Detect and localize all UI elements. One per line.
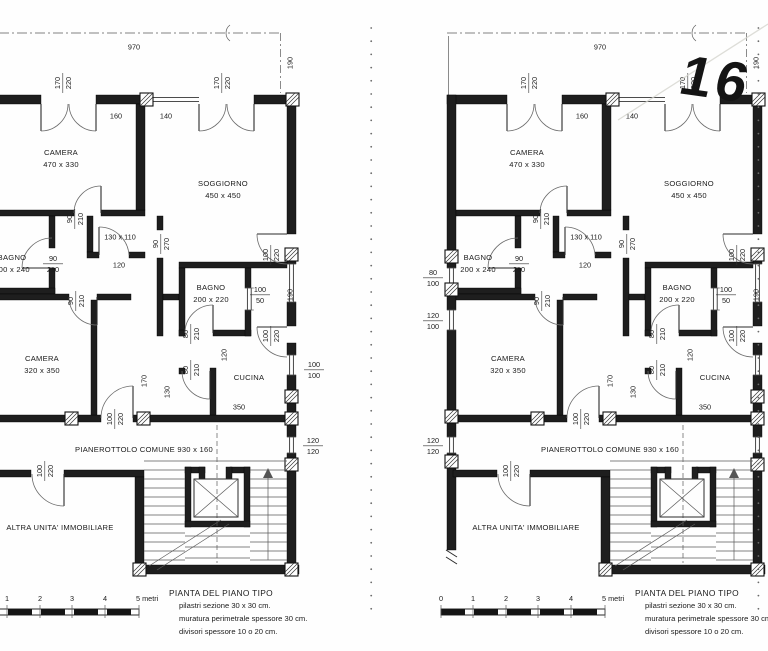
room-label: BAGNO200 x 240 <box>460 253 496 274</box>
svg-text:210: 210 <box>77 295 86 307</box>
svg-text:120: 120 <box>427 311 439 320</box>
svg-text:210: 210 <box>513 265 525 274</box>
door-swing-arc <box>69 104 96 131</box>
svg-text:80: 80 <box>181 330 190 338</box>
dimension-label: 140 <box>160 112 172 121</box>
svg-text:210: 210 <box>76 213 85 225</box>
svg-text:160: 160 <box>576 112 588 121</box>
drawing-note: divisori spessore 10 o 20 cm. <box>179 627 277 636</box>
svg-text:200 x 220: 200 x 220 <box>659 295 695 304</box>
svg-text:470 x 330: 470 x 330 <box>43 160 79 169</box>
svg-text:220: 220 <box>46 465 55 477</box>
dimension-label: 100220 <box>727 326 747 346</box>
door-swing-arc <box>227 104 254 131</box>
scale-bar: 012345 metri <box>0 594 159 618</box>
elevator-shaft <box>194 479 238 517</box>
svg-text:220: 220 <box>530 77 539 89</box>
drawing-title: PIANTA DEL PIANO TIPO <box>635 588 739 598</box>
room-label: CUCINA <box>234 373 265 382</box>
dimension-label: 350 <box>699 403 711 412</box>
svg-text:100: 100 <box>261 330 270 342</box>
svg-text:100: 100 <box>308 371 320 380</box>
dimension-label: 170 <box>140 375 149 387</box>
svg-text:BAGNO: BAGNO <box>197 283 226 292</box>
dimension-label: 170220 <box>53 73 73 93</box>
room-label: SOGGIORNO450 x 450 <box>664 179 714 200</box>
svg-text:120: 120 <box>427 436 439 445</box>
door-swing-arc <box>507 104 534 131</box>
dimension-label: 170220 <box>212 73 232 93</box>
dimension-label: 100220 <box>727 245 747 265</box>
room-label: ALTRA UNITA' IMMOBILIARE <box>472 523 579 532</box>
svg-text:220: 220 <box>738 249 747 261</box>
svg-text:970: 970 <box>128 43 140 52</box>
svg-text:200 x 240: 200 x 240 <box>0 265 30 274</box>
svg-text:90: 90 <box>151 240 160 248</box>
dimension-label: 100220 <box>571 409 591 429</box>
svg-text:450 x 450: 450 x 450 <box>671 191 707 200</box>
svg-text:220: 220 <box>223 77 232 89</box>
svg-text:130 x 110: 130 x 110 <box>570 233 602 242</box>
scale-tick-label: 5 metri <box>602 594 625 603</box>
dimension-label: 170 <box>606 375 615 387</box>
room-label: BAGNO200 x 220 <box>659 283 695 304</box>
svg-text:100: 100 <box>35 465 44 477</box>
svg-text:170: 170 <box>140 375 149 387</box>
dimension-label: 190 <box>286 289 295 301</box>
svg-text:BAGNO: BAGNO <box>663 283 692 292</box>
scale-tick-label: 1 <box>471 594 475 603</box>
dimension-label: 80210 <box>647 360 667 380</box>
dimension-label: 100220 <box>261 245 281 265</box>
svg-text:170: 170 <box>519 77 528 89</box>
svg-text:100: 100 <box>254 285 266 294</box>
dimension-label: 120 <box>113 261 125 270</box>
svg-text:130 x 110: 130 x 110 <box>104 233 136 242</box>
door-swing-arc <box>498 474 530 506</box>
drawing-note: divisori spessore 10 o 20 cm. <box>645 627 743 636</box>
svg-text:140: 140 <box>626 112 638 121</box>
svg-text:160: 160 <box>110 112 122 121</box>
svg-text:170: 170 <box>53 77 62 89</box>
svg-text:320 x 350: 320 x 350 <box>490 366 526 375</box>
dimension-label: 130 x 110 <box>104 233 136 242</box>
svg-text:CAMERA: CAMERA <box>510 148 545 157</box>
svg-text:190: 190 <box>286 57 295 69</box>
room-label: CUCINA <box>700 373 731 382</box>
svg-text:BAGNO: BAGNO <box>0 253 26 262</box>
room-label: SOGGIORNO450 x 450 <box>198 179 248 200</box>
svg-text:470 x 330: 470 x 330 <box>509 160 545 169</box>
svg-text:CUCINA: CUCINA <box>700 373 731 382</box>
svg-text:170: 170 <box>606 375 615 387</box>
dimension-label: 90210 <box>43 254 63 274</box>
dimension-label: 120120 <box>423 436 443 456</box>
dimension-label: 100220 <box>261 326 281 346</box>
svg-text:100: 100 <box>308 360 320 369</box>
stair-direction-arrow <box>729 468 739 478</box>
svg-text:220: 220 <box>512 465 521 477</box>
dimension-label: 130 <box>629 386 638 398</box>
dimension-label: 120 <box>579 261 591 270</box>
svg-text:210: 210 <box>658 364 667 376</box>
svg-text:120: 120 <box>579 261 591 270</box>
scale-tick-label: 2 <box>504 594 508 603</box>
drawing-note: muratura perimetrale spessore 30 cm. <box>645 614 768 623</box>
scale-tick-label: 3 <box>70 594 74 603</box>
drawing-note: muratura perimetrale spessore 30 cm. <box>179 614 307 623</box>
floorplan-right-unit: 97017022017022016014019090210130 x 11012… <box>423 25 768 636</box>
svg-text:140: 140 <box>160 112 172 121</box>
dimension-label: 90210 <box>509 254 529 274</box>
dimension-label: 120 <box>220 349 229 361</box>
dimension-label: 160 <box>110 112 122 121</box>
scanned-floorplan-page: 97017022017022016014019090210130 x 11012… <box>0 0 768 651</box>
dimension-label: 100220 <box>105 409 125 429</box>
svg-text:SOGGIORNO: SOGGIORNO <box>664 179 714 188</box>
svg-text:320 x 350: 320 x 350 <box>24 366 60 375</box>
svg-text:PIANEROTTOLO COMUNE 930 x 160: PIANEROTTOLO COMUNE 930 x 160 <box>75 445 213 454</box>
scale-tick-label: 1 <box>5 594 9 603</box>
dimension-label: 160 <box>576 112 588 121</box>
handwritten-page-number: 16 <box>674 43 759 114</box>
svg-text:90: 90 <box>49 254 57 263</box>
door-swing-arc <box>199 104 226 131</box>
dimension-label: 10050 <box>716 285 736 305</box>
room-label: ALTRA UNITA' IMMOBILIARE <box>6 523 113 532</box>
svg-text:CAMERA: CAMERA <box>491 354 526 363</box>
svg-text:PIANEROTTOLO COMUNE 930 x 160: PIANEROTTOLO COMUNE 930 x 160 <box>541 445 679 454</box>
svg-text:270: 270 <box>162 238 171 250</box>
svg-text:CAMERA: CAMERA <box>25 354 60 363</box>
svg-text:220: 220 <box>116 413 125 425</box>
svg-text:BAGNO: BAGNO <box>464 253 493 262</box>
svg-text:90: 90 <box>66 297 75 305</box>
svg-text:220: 220 <box>582 413 591 425</box>
svg-text:210: 210 <box>543 295 552 307</box>
svg-text:120: 120 <box>307 436 319 445</box>
svg-text:100: 100 <box>427 279 439 288</box>
dimension-label: 100220 <box>35 461 55 481</box>
room-label: BAGNO200 x 240 <box>0 253 30 274</box>
svg-text:970: 970 <box>594 43 606 52</box>
svg-text:120: 120 <box>307 447 319 456</box>
door-swing-arc <box>540 186 567 213</box>
svg-text:190: 190 <box>752 289 761 301</box>
svg-text:130: 130 <box>629 386 638 398</box>
room-label: BAGNO200 x 220 <box>193 283 229 304</box>
svg-text:120: 120 <box>686 349 695 361</box>
scale-tick-label: 4 <box>103 594 107 603</box>
dimension-label: 120 <box>686 349 695 361</box>
drawing-title: PIANTA DEL PIANO TIPO <box>169 588 273 598</box>
scale-bar: 012345 metri <box>439 594 625 618</box>
svg-text:CUCINA: CUCINA <box>234 373 265 382</box>
dimension-label: 90270 <box>617 234 637 254</box>
drawing-note: pilastri sezione 30 x 30 cm. <box>645 601 737 610</box>
room-label: CAMERA470 x 330 <box>43 148 79 169</box>
svg-text:100: 100 <box>261 249 270 261</box>
svg-text:350: 350 <box>699 403 711 412</box>
svg-text:120: 120 <box>113 261 125 270</box>
dimension-label: 190 <box>752 289 761 301</box>
dimension-label: 120100 <box>423 311 443 331</box>
scale-tick-label: 2 <box>38 594 42 603</box>
svg-text:100: 100 <box>105 413 114 425</box>
svg-text:200 x 220: 200 x 220 <box>193 295 229 304</box>
svg-text:ALTRA UNITA' IMMOBILIARE: ALTRA UNITA' IMMOBILIARE <box>6 523 113 532</box>
scale-tick-label: 3 <box>536 594 540 603</box>
svg-text:220: 220 <box>738 330 747 342</box>
dimension-label: 970 <box>128 43 140 52</box>
dimension-label: 100220 <box>501 461 521 481</box>
svg-text:220: 220 <box>272 330 281 342</box>
svg-text:90: 90 <box>515 254 523 263</box>
dimension-label: 190 <box>286 57 295 69</box>
dimension-label: 100100 <box>304 360 324 380</box>
svg-text:350: 350 <box>233 403 245 412</box>
svg-text:210: 210 <box>192 364 201 376</box>
scale-tick-label: 0 <box>439 594 443 603</box>
svg-text:210: 210 <box>192 328 201 340</box>
scale-tick-label: 4 <box>569 594 573 603</box>
dimension-label: 970 <box>594 43 606 52</box>
svg-text:120: 120 <box>427 447 439 456</box>
svg-text:ALTRA UNITA' IMMOBILIARE: ALTRA UNITA' IMMOBILIARE <box>472 523 579 532</box>
svg-text:80: 80 <box>429 268 437 277</box>
svg-text:80: 80 <box>647 366 656 374</box>
door-swing-arc <box>665 104 692 131</box>
svg-text:90: 90 <box>532 297 541 305</box>
svg-text:100: 100 <box>720 285 732 294</box>
dimension-label: 90270 <box>151 234 171 254</box>
stair-direction-arrow <box>263 468 273 478</box>
scale-tick-label: 5 metri <box>136 594 159 603</box>
svg-text:220: 220 <box>272 249 281 261</box>
svg-text:100: 100 <box>571 413 580 425</box>
room-label: CAMERA470 x 330 <box>509 148 545 169</box>
room-label: CAMERA320 x 350 <box>490 354 526 375</box>
dimension-label: 350 <box>233 403 245 412</box>
door-swing-arc <box>32 474 64 506</box>
svg-text:200 x 240: 200 x 240 <box>460 265 496 274</box>
svg-text:100: 100 <box>427 322 439 331</box>
svg-text:170: 170 <box>212 77 221 89</box>
dimension-label: 170220 <box>519 73 539 93</box>
svg-text:50: 50 <box>722 296 730 305</box>
svg-text:210: 210 <box>542 213 551 225</box>
svg-text:CAMERA: CAMERA <box>44 148 79 157</box>
drawing-note: pilastri sezione 30 x 30 cm. <box>179 601 271 610</box>
svg-text:120: 120 <box>220 349 229 361</box>
floor-plan-drawing: 97017022017022016014019090210130 x 11012… <box>0 0 768 651</box>
floorplan-left-unit: 97017022017022016014019090210130 x 11012… <box>0 25 324 636</box>
svg-text:100: 100 <box>727 249 736 261</box>
svg-text:220: 220 <box>64 77 73 89</box>
door-swing-arc <box>41 104 68 131</box>
svg-text:90: 90 <box>617 240 626 248</box>
dimension-label: 130 x 110 <box>570 233 602 242</box>
room-label: PIANEROTTOLO COMUNE 930 x 160 <box>541 445 679 454</box>
svg-text:190: 190 <box>286 289 295 301</box>
svg-text:450 x 450: 450 x 450 <box>205 191 241 200</box>
room-label: PIANEROTTOLO COMUNE 930 x 160 <box>75 445 213 454</box>
svg-text:90: 90 <box>531 215 540 223</box>
svg-text:270: 270 <box>628 238 637 250</box>
svg-text:80: 80 <box>647 330 656 338</box>
svg-text:80: 80 <box>181 366 190 374</box>
elevator-shaft <box>660 479 704 517</box>
room-label: CAMERA320 x 350 <box>24 354 60 375</box>
dimension-label: 10050 <box>250 285 270 305</box>
svg-text:100: 100 <box>501 465 510 477</box>
svg-text:50: 50 <box>256 296 264 305</box>
svg-text:130: 130 <box>163 386 172 398</box>
door-swing-arc <box>74 186 101 213</box>
dimension-label: 80100 <box>423 268 443 288</box>
svg-text:90: 90 <box>65 215 74 223</box>
svg-text:210: 210 <box>658 328 667 340</box>
door-swing-arc <box>535 104 562 131</box>
dimension-label: 80210 <box>181 360 201 380</box>
dimension-label: 120120 <box>303 436 323 456</box>
svg-text:100: 100 <box>727 330 736 342</box>
dimension-label: 140 <box>626 112 638 121</box>
svg-text:SOGGIORNO: SOGGIORNO <box>198 179 248 188</box>
svg-text:210: 210 <box>47 265 59 274</box>
dimension-label: 130 <box>163 386 172 398</box>
